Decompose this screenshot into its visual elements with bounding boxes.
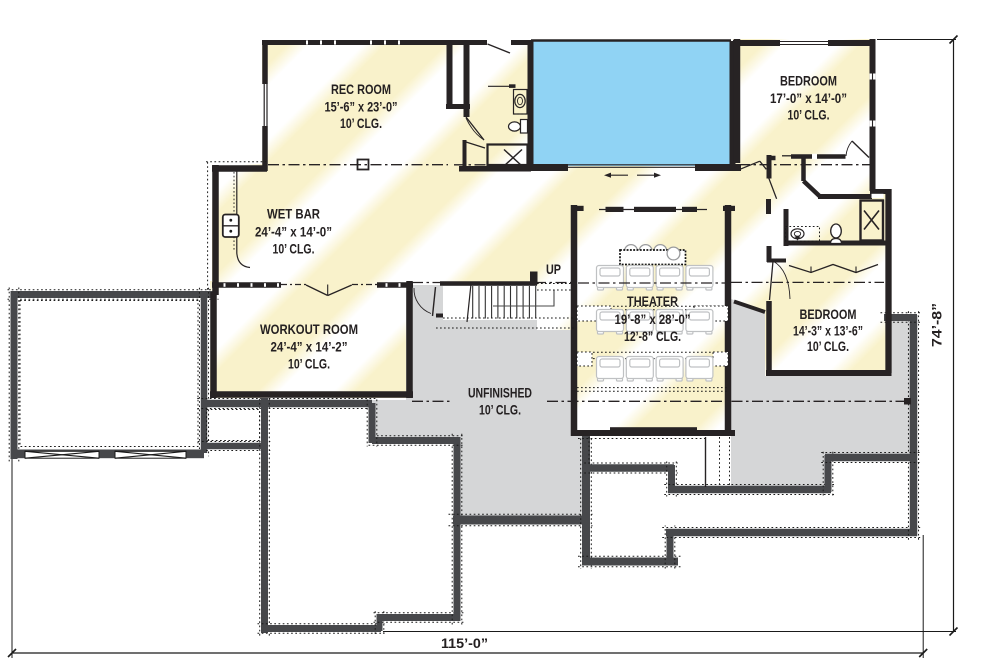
svg-text:UP: UP bbox=[546, 261, 561, 277]
svg-text:74’-8”: 74’-8” bbox=[929, 303, 945, 347]
svg-text:24’-4” x 14’-2”: 24’-4” x 14’-2” bbox=[271, 339, 348, 355]
svg-text:10’ CLG.: 10’ CLG. bbox=[273, 241, 315, 257]
svg-text:10’ CLG.: 10’ CLG. bbox=[288, 356, 330, 372]
svg-text:UNFINISHED: UNFINISHED bbox=[468, 385, 532, 401]
svg-text:14’-3” x 13’-6”: 14’-3” x 13’-6” bbox=[793, 323, 863, 339]
svg-text:15’-6” x 23’-0”: 15’-6” x 23’-0” bbox=[325, 99, 398, 115]
svg-text:10’ CLG.: 10’ CLG. bbox=[340, 115, 382, 131]
svg-text:WORKOUT ROOM: WORKOUT ROOM bbox=[260, 321, 358, 337]
svg-text:THEATER: THEATER bbox=[627, 293, 678, 309]
svg-text:10’ CLG.: 10’ CLG. bbox=[807, 338, 849, 354]
svg-text:19’-8” x 28’-0”: 19’-8” x 28’-0” bbox=[615, 311, 691, 327]
svg-text:10’ CLG.: 10’ CLG. bbox=[479, 402, 521, 418]
svg-text:24’-4” x 14’-0”: 24’-4” x 14’-0” bbox=[255, 224, 332, 240]
svg-text:BEDROOM: BEDROOM bbox=[800, 306, 857, 322]
svg-text:115’-0”: 115’-0” bbox=[441, 635, 488, 651]
svg-text:WET BAR: WET BAR bbox=[267, 206, 320, 222]
svg-text:REC ROOM: REC ROOM bbox=[331, 81, 391, 97]
svg-text:12’-8” CLG.: 12’-8” CLG. bbox=[624, 328, 681, 344]
svg-text:BEDROOM: BEDROOM bbox=[780, 73, 837, 89]
svg-text:17’-0” x 14’-0”: 17’-0” x 14’-0” bbox=[770, 90, 847, 106]
svg-text:10’ CLG.: 10’ CLG. bbox=[788, 107, 830, 123]
